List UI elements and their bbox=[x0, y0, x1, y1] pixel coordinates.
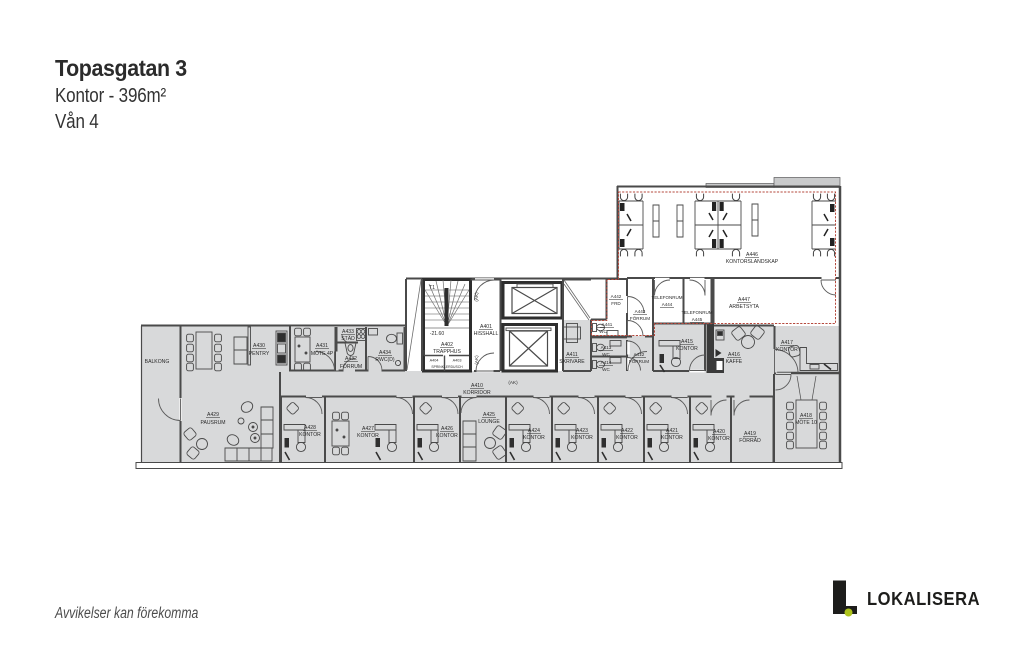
svg-text:STÄD: STÄD bbox=[341, 335, 355, 342]
svg-text:A411: A411 bbox=[566, 352, 578, 358]
svg-text:A415: A415 bbox=[681, 339, 693, 345]
svg-text:A442: A442 bbox=[611, 294, 622, 299]
svg-text:A426: A426 bbox=[441, 426, 453, 432]
svg-text:A402: A402 bbox=[441, 342, 453, 348]
svg-text:TELEFONRUM: TELEFONRUM bbox=[651, 295, 682, 300]
svg-text:A425: A425 bbox=[483, 412, 495, 418]
svg-text:SPRINKLERDUSCH: SPRINKLERDUSCH bbox=[431, 365, 463, 369]
svg-text:KONTOR: KONTOR bbox=[661, 435, 683, 441]
svg-text:A429: A429 bbox=[207, 412, 219, 418]
svg-text:FRD: FRD bbox=[611, 301, 621, 306]
svg-text:KONTOR: KONTOR bbox=[616, 435, 638, 441]
svg-text:A420: A420 bbox=[713, 429, 725, 435]
svg-text:A410: A410 bbox=[471, 383, 483, 389]
svg-text:BALKONG: BALKONG bbox=[145, 359, 170, 365]
svg-text:KONTOR: KONTOR bbox=[357, 433, 379, 439]
svg-text:A432: A432 bbox=[345, 356, 357, 362]
svg-text:FÖRRUM: FÖRRUM bbox=[340, 363, 362, 370]
svg-text:FÖRRUM: FÖRRUM bbox=[629, 358, 649, 364]
svg-text:KONTOR: KONTOR bbox=[776, 347, 798, 353]
svg-text:ARBETSYTA: ARBETSYTA bbox=[729, 304, 760, 310]
svg-text:MÖTE 10: MÖTE 10 bbox=[795, 419, 817, 426]
svg-text:A421: A421 bbox=[666, 428, 678, 434]
svg-text:LOUNGE: LOUNGE bbox=[478, 419, 500, 425]
svg-text:A424: A424 bbox=[528, 428, 540, 434]
svg-text:KONTOR: KONTOR bbox=[708, 436, 730, 442]
svg-text:KAFFE: KAFFE bbox=[726, 359, 743, 365]
svg-text:TRAPPHUS: TRAPPHUS bbox=[433, 349, 461, 355]
svg-text:KONTOR: KONTOR bbox=[299, 432, 321, 438]
svg-text:A418: A418 bbox=[800, 413, 812, 419]
svg-text:A433: A433 bbox=[342, 329, 354, 335]
svg-text:A443: A443 bbox=[635, 309, 646, 314]
svg-text:MÖTE 4P: MÖTE 4P bbox=[311, 350, 334, 357]
svg-text:A428: A428 bbox=[304, 425, 316, 431]
svg-text:A401: A401 bbox=[480, 324, 492, 330]
svg-text:FÖRRUM: FÖRRUM bbox=[630, 315, 650, 321]
svg-text:A445: A445 bbox=[692, 317, 703, 322]
svg-text:A413: A413 bbox=[601, 345, 612, 350]
svg-text:KONTOR: KONTOR bbox=[436, 433, 458, 439]
svg-text:T1: T1 bbox=[429, 285, 435, 291]
svg-text:A417: A417 bbox=[781, 340, 793, 346]
svg-text:KONTORSLANDSKAP: KONTORSLANDSKAP bbox=[726, 259, 779, 265]
svg-text:RWC(D): RWC(D) bbox=[375, 357, 394, 363]
svg-text:A427: A427 bbox=[362, 426, 374, 432]
svg-text:SKRIVARE: SKRIVARE bbox=[559, 359, 585, 365]
svg-text:WC: WC bbox=[599, 329, 607, 334]
svg-text:HISSHALL: HISSHALL bbox=[474, 331, 499, 337]
svg-text:A412: A412 bbox=[634, 352, 645, 357]
svg-text:A423: A423 bbox=[576, 428, 588, 434]
svg-text:WC: WC bbox=[602, 352, 610, 357]
svg-text:WC: WC bbox=[602, 367, 610, 372]
svg-text:KONTOR: KONTOR bbox=[571, 435, 593, 441]
svg-text:TELEFONRUM: TELEFONRUM bbox=[681, 310, 712, 315]
svg-text:PAUSRUM: PAUSRUM bbox=[200, 420, 225, 426]
svg-text:KORRIDOR: KORRIDOR bbox=[463, 390, 491, 396]
svg-text:A447: A447 bbox=[738, 297, 750, 303]
svg-text:(AK): (AK) bbox=[508, 380, 518, 385]
svg-text:A430: A430 bbox=[253, 343, 265, 349]
svg-text:A419: A419 bbox=[744, 431, 756, 437]
svg-text:KONTOR: KONTOR bbox=[523, 435, 545, 441]
svg-text:A403: A403 bbox=[453, 359, 462, 363]
svg-text:A434: A434 bbox=[379, 350, 391, 356]
svg-text:A414: A414 bbox=[601, 360, 612, 365]
svg-text:FÖRRÅD: FÖRRÅD bbox=[739, 437, 761, 444]
svg-text:A431: A431 bbox=[316, 343, 328, 349]
svg-text:A441: A441 bbox=[602, 322, 613, 327]
svg-text:A416: A416 bbox=[728, 352, 740, 358]
svg-text:A404: A404 bbox=[430, 359, 439, 363]
svg-text:A422: A422 bbox=[621, 428, 633, 434]
svg-text:(AK): (AK) bbox=[474, 292, 479, 302]
svg-text:KONTOR: KONTOR bbox=[676, 346, 698, 352]
svg-text:-21.60: -21.60 bbox=[430, 331, 445, 337]
svg-text:A446: A446 bbox=[746, 252, 758, 258]
svg-text:PENTRY: PENTRY bbox=[249, 351, 270, 357]
svg-text:A444: A444 bbox=[662, 302, 673, 307]
svg-text:(AK): (AK) bbox=[474, 355, 479, 365]
